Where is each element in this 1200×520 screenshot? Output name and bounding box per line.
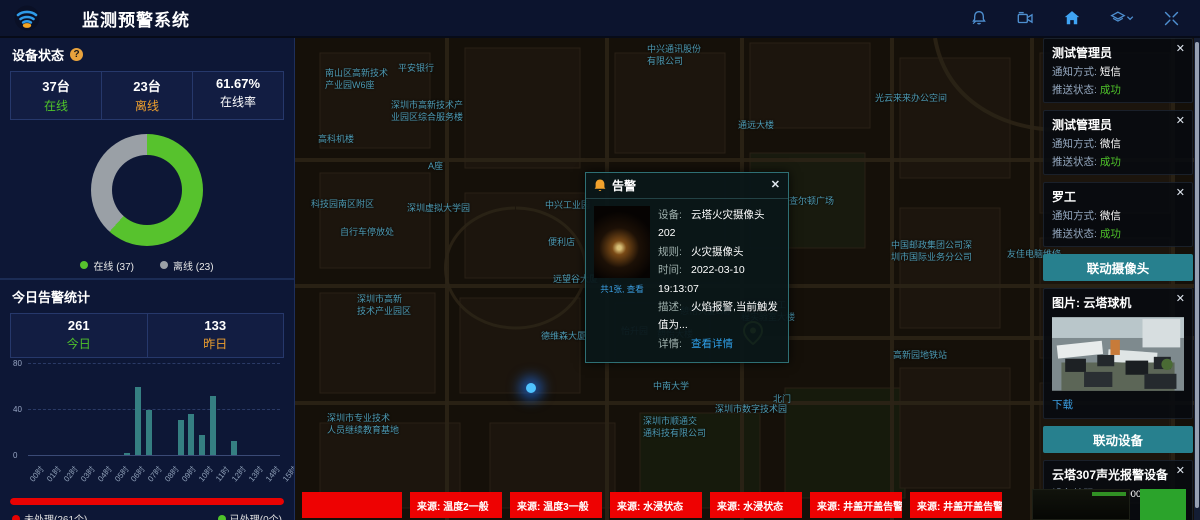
device-status-donut-chart xyxy=(91,134,203,246)
close-icon[interactable]: ✕ xyxy=(1176,116,1185,127)
alarm-ticker-item[interactable]: 来源: 温度3一般 xyxy=(510,492,602,518)
layers-icon[interactable] xyxy=(1109,9,1135,27)
right-sidebar: ✕ 测试管理员 通知方式: 短信 推送状态: 成功 ✕ 测试管理员 通知方式: … xyxy=(1043,38,1193,520)
map-label: 南山区高新技术 产业园W6座 xyxy=(325,68,388,91)
map-label: 查尔顿广场 xyxy=(789,196,834,208)
x-axis-label: 02时 xyxy=(62,458,79,476)
video-camera-icon[interactable] xyxy=(1016,9,1035,27)
notify-method-row: 通知方式: 短信 xyxy=(1052,64,1184,79)
map-label: 便利店 xyxy=(548,237,575,249)
notify-method-row: 通知方式: 微信 xyxy=(1052,208,1184,223)
notification-title: 罗工 xyxy=(1052,188,1184,205)
x-axis-label: 09时 xyxy=(180,458,197,476)
y-axis-label: 80 xyxy=(13,359,22,368)
x-axis-label: 06时 xyxy=(129,458,146,476)
alarm-progress-fill xyxy=(10,498,284,505)
x-axis-label: 04时 xyxy=(96,458,113,476)
bar xyxy=(124,453,130,455)
map-label: 深圳市高新技术产 业园区综合服务楼 xyxy=(391,100,463,123)
help-icon[interactable]: ? xyxy=(70,48,83,61)
legend-dot xyxy=(160,261,168,269)
push-status-row: 推送状态: 成功 xyxy=(1052,226,1184,241)
alarm-popup-title: 告警 xyxy=(612,177,636,194)
today-alarms-title: 今日告警统计 xyxy=(12,287,90,306)
map-label: 深圳市专业技术 人员继续教育基地 xyxy=(327,413,399,436)
alarm-thumb-wrap: 共1张, 查看 xyxy=(594,206,650,353)
bar xyxy=(199,435,205,455)
handled-legend: 已处理(0个) xyxy=(218,511,282,520)
legend-label: 在线 (37) xyxy=(93,258,134,273)
map-label: 科技园南区附区 xyxy=(311,199,374,211)
alarm-popup-body: 共1张, 查看 设备:云塔火灾摄像头202 规则:火灾摄像头 时间:2022-0… xyxy=(586,199,788,362)
y-axis-label: 0 xyxy=(13,451,17,460)
stat-today: 261 今日 xyxy=(11,314,147,357)
donut-legend: 在线 (37)离线 (23) xyxy=(80,258,213,272)
left-sidebar: 设备状态 ? 37台 在线 23台 离线 61.67% 在线率 在线 (37)离… xyxy=(0,38,295,520)
map-label: 深圳市高新 技术产业园区 xyxy=(357,294,411,317)
alarm-ticker-item[interactable]: 来源: 水浸状态 xyxy=(610,492,702,518)
map-label: 中兴通讯股份 有限公司 xyxy=(647,44,701,67)
close-icon[interactable]: ✕ xyxy=(1176,188,1185,199)
device-status-donut-wrap: 在线 (37)离线 (23) xyxy=(0,120,294,272)
push-status-row: 推送状态: 成功 xyxy=(1052,154,1184,169)
bar xyxy=(146,410,152,456)
donut-legend-item: 离线 (23) xyxy=(160,258,214,272)
alarm-ticker-item[interactable] xyxy=(302,492,402,518)
x-axis-label: 13时 xyxy=(247,458,264,476)
alarm-progress-legend: 未处理(261个) 已处理(0个) xyxy=(12,511,282,520)
bar xyxy=(210,396,216,455)
x-axis-label: 00时 xyxy=(28,458,45,476)
alarm-thumb-caption[interactable]: 共1张, 查看 xyxy=(594,283,650,295)
vertical-scrollbar xyxy=(1194,38,1200,520)
notification-card: ✕ 罗工 通知方式: 微信 推送状态: 成功 xyxy=(1043,182,1193,247)
video-thumbnail-green[interactable] xyxy=(1140,489,1186,520)
stat-offline: 23台 离线 xyxy=(101,72,192,119)
legend-label: 离线 (23) xyxy=(173,258,214,273)
today-alarms-bar-chart: 04080 00时01时02时03时04时05时06时07时08时09时10时1… xyxy=(12,360,282,488)
alarm-progress-bar xyxy=(10,498,284,505)
x-axis-label: 01时 xyxy=(45,458,62,476)
bar-chart-plot xyxy=(28,364,280,456)
app-logo-icon xyxy=(14,5,40,31)
page-title: 监测预警系统 xyxy=(82,6,190,31)
linked-devices-header: 联动设备 xyxy=(1043,426,1193,453)
home-icon[interactable] xyxy=(1063,9,1081,27)
x-axis-label: 14时 xyxy=(264,458,281,476)
x-axis-label: 10时 xyxy=(197,458,214,476)
map-label: 中南大学 xyxy=(653,381,689,393)
x-axis-label: 03时 xyxy=(79,458,96,476)
map-label: A座 xyxy=(428,161,443,173)
y-axis-label: 40 xyxy=(13,405,22,414)
alarm-popup: 告警 ✕ 共1张, 查看 设备:云塔火灾摄像头202 规则:火灾摄像头 时间:2… xyxy=(585,172,789,363)
x-axis-label: 08时 xyxy=(163,458,180,476)
device-status-title: 设备状态 xyxy=(12,45,64,64)
alarm-row-time: 时间:2022-03-10 19:13:07 xyxy=(658,261,780,298)
close-icon[interactable]: ✕ xyxy=(771,180,780,191)
camera-image-card: ✕ 图片: 云塔球机 下载 xyxy=(1043,288,1193,419)
map-label: 平安银行 xyxy=(398,63,434,75)
map-label: 德维森大厦 xyxy=(541,331,586,343)
today-alarms-stats: 261 今日 133 昨日 xyxy=(10,313,284,358)
alarm-ticker-item[interactable]: 来源: 井盖开盖告警 xyxy=(910,492,1002,518)
map-label: 中国邮政集团公司深 圳市国际业务分公司 xyxy=(891,240,972,263)
stat-online-rate: 61.67% 在线率 xyxy=(192,72,283,119)
alarm-ticker-item[interactable]: 来源: 井盖开盖告警 xyxy=(810,492,902,518)
device-status-stats: 37台 在线 23台 离线 61.67% 在线率 xyxy=(10,71,284,120)
alarm-row-rule: 规则:火灾摄像头 xyxy=(658,243,780,261)
linked-cameras-header: 联动摄像头 xyxy=(1043,254,1193,281)
camera-snapshot-image[interactable] xyxy=(1052,315,1184,393)
bar-chart-x-axis: 00时01时02时03时04时05时06时07时08时09时10时11时12时1… xyxy=(28,458,280,476)
bar xyxy=(178,420,184,455)
bell-mute-icon[interactable] xyxy=(970,9,988,27)
x-axis-label: 11时 xyxy=(214,458,230,476)
map-label: 光云来来办公空间 xyxy=(875,93,947,105)
bar xyxy=(188,414,194,455)
alarm-bell-icon xyxy=(594,179,606,193)
notification-title: 测试管理员 xyxy=(1052,116,1184,133)
alarm-ticker-item[interactable]: 来源: 温度2一般 xyxy=(410,492,502,518)
device-marker-blue[interactable] xyxy=(526,383,536,393)
fullscreen-icon[interactable] xyxy=(1163,10,1180,27)
bar xyxy=(135,387,141,455)
alarm-detail-rows: 设备:云塔火灾摄像头202 规则:火灾摄像头 时间:2022-03-10 19:… xyxy=(658,206,780,353)
top-header: 监测预警系统 xyxy=(0,0,1200,38)
alarm-ticker-item[interactable]: 来源: 水浸状态 xyxy=(710,492,802,518)
map-label: 高新园地铁站 xyxy=(893,350,947,362)
red-dot-icon xyxy=(12,515,20,520)
x-axis-label: 07时 xyxy=(146,458,163,476)
device-card-title: 云塔307声光报警设备 xyxy=(1052,466,1184,483)
map-label: 高科机楼 xyxy=(318,134,354,146)
stat-online: 37台 在线 xyxy=(11,72,101,119)
unhandled-legend: 未处理(261个) xyxy=(12,511,87,520)
green-dot-icon xyxy=(218,515,226,520)
bar xyxy=(231,441,237,455)
today-alarms-header: 今日告警统计 xyxy=(0,278,294,310)
map-label: 中兴工业园 xyxy=(545,200,590,212)
alarm-snapshot-image[interactable] xyxy=(594,206,650,278)
map-label: 深圳市数字技术园 xyxy=(715,404,787,416)
map-label: 深圳虚拟大学园 xyxy=(407,203,470,215)
scrollbar-thumb[interactable] xyxy=(1195,42,1199,508)
download-link[interactable]: 下载 xyxy=(1052,397,1073,412)
device-status-header: 设备状态 ? xyxy=(0,38,294,68)
alarm-row-desc: 描述:火焰报警,当前触发值为... xyxy=(658,298,780,335)
donut-legend-item: 在线 (37) xyxy=(80,258,134,272)
x-axis-label: 12时 xyxy=(230,458,247,476)
notification-card: ✕ 测试管理员 通知方式: 微信 推送状态: 成功 xyxy=(1043,110,1193,175)
map-label: 北门 xyxy=(773,394,791,406)
close-icon[interactable]: ✕ xyxy=(1176,294,1185,305)
view-detail-link[interactable]: 查看详情 xyxy=(691,338,733,350)
map-label: 深圳市顺通交 通科技有限公司 xyxy=(643,416,706,439)
alarm-row-device: 设备:云塔火灾摄像头202 xyxy=(658,206,780,243)
x-axis-label: 15时 xyxy=(281,458,295,476)
video-thumbnail[interactable] xyxy=(1032,489,1130,520)
camera-card-title: 图片: 云塔球机 xyxy=(1052,294,1184,311)
notification-card: ✕ 测试管理员 通知方式: 短信 推送状态: 成功 xyxy=(1043,38,1193,103)
alarm-ticker: 来源: 温度2一般来源: 温度3一般来源: 水浸状态来源: 水浸状态来源: 井盖… xyxy=(302,492,1030,518)
push-status-row: 推送状态: 成功 xyxy=(1052,82,1184,97)
close-icon[interactable]: ✕ xyxy=(1176,466,1185,477)
map-label: 通远大楼 xyxy=(738,120,774,132)
x-axis-label: 05时 xyxy=(113,458,130,476)
close-icon[interactable]: ✕ xyxy=(1176,44,1185,55)
map-label: 自行车停放处 xyxy=(340,227,394,239)
notify-method-row: 通知方式: 微信 xyxy=(1052,136,1184,151)
notification-title: 测试管理员 xyxy=(1052,44,1184,61)
alarm-row-detail: 详情:查看详情 xyxy=(658,335,780,353)
stat-yesterday: 133 昨日 xyxy=(147,314,284,357)
legend-dot xyxy=(80,261,88,269)
alarm-popup-header: 告警 ✕ xyxy=(586,173,788,199)
header-actions xyxy=(970,9,1180,27)
thumbnail-overlay-text xyxy=(1092,492,1126,496)
